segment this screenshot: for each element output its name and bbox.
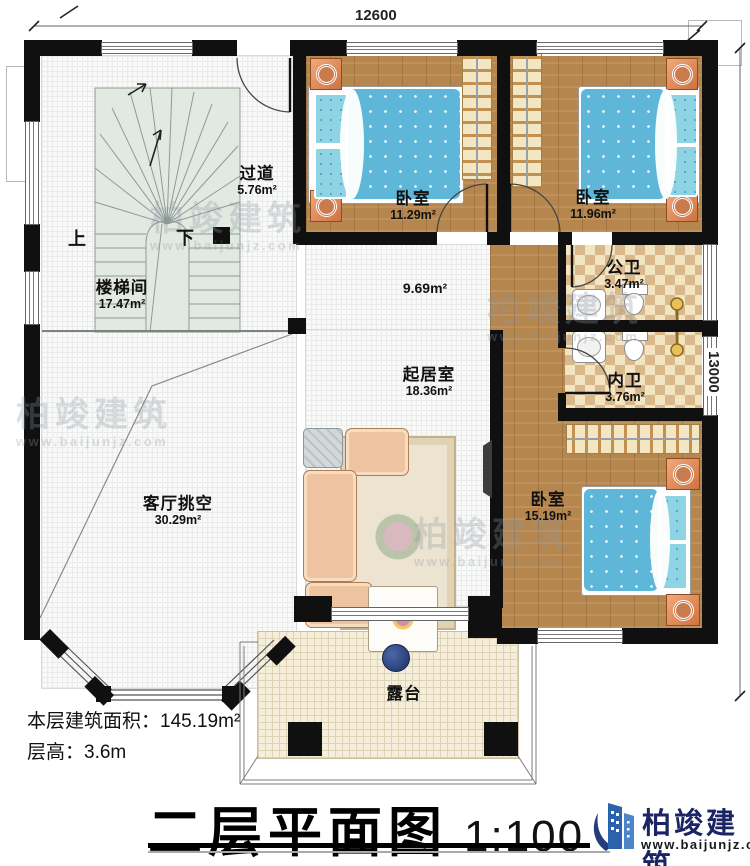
floor-height-label: 层高：	[27, 742, 84, 763]
room-label-ensuite-bath: 内卫 3.76m²	[605, 372, 645, 404]
floor-height-value: 3.6m	[84, 742, 126, 763]
wall	[293, 40, 306, 244]
window	[538, 631, 622, 642]
door-arc	[237, 58, 290, 112]
wall	[24, 324, 40, 640]
room-label-living: 起居室 18.36m²	[403, 366, 456, 398]
wall	[24, 224, 40, 272]
wall	[497, 40, 510, 232]
wall	[702, 40, 718, 245]
stair-up-label: 上	[68, 225, 86, 251]
wall	[558, 320, 705, 332]
floor-area-label: 本层建筑面积：	[27, 711, 160, 732]
window	[347, 43, 457, 53]
bay-wall-blocks	[39, 629, 295, 711]
room-label-bedroom2: 卧室 11.96m²	[570, 189, 616, 221]
floor-plan-canvas: 12600 13000 过道 5.76m² 楼梯间 17.47m² 卧室 11.…	[0, 0, 750, 866]
wall	[192, 40, 237, 56]
floor-area-note: 本层建筑面积：145.19m²	[27, 706, 240, 733]
wall	[612, 232, 718, 245]
wall	[294, 596, 332, 622]
floor-area-value: 145.19m²	[160, 711, 240, 732]
dimension-top: 12600	[352, 7, 400, 24]
window	[26, 122, 38, 224]
room-label-bedroom1: 卧室 11.29m²	[390, 190, 436, 222]
window	[26, 272, 38, 324]
terrace-column	[484, 722, 518, 756]
door-arc	[510, 184, 560, 232]
window	[704, 245, 716, 320]
room-label-void: 客厅挑空 30.29m²	[143, 495, 213, 527]
terrace-railing	[240, 642, 536, 784]
void-railing-line	[42, 330, 296, 332]
title-text: 二层平面图	[148, 803, 448, 863]
brand-logo-icon	[590, 795, 638, 853]
window	[102, 43, 192, 53]
room-label-corridor: 过道 5.76m²	[237, 165, 277, 197]
title-underline-thin	[148, 851, 610, 853]
wall	[558, 245, 566, 348]
wall	[622, 628, 718, 644]
wall	[702, 415, 718, 644]
room-label-hall-area: 9.69m²	[403, 281, 447, 297]
wall	[558, 408, 705, 421]
title-underline	[148, 843, 590, 848]
wall	[487, 232, 510, 245]
wall	[296, 232, 437, 245]
door-arc	[437, 184, 487, 232]
room-label-public-bath: 公卫 3.47m²	[604, 259, 644, 291]
stair-direction-arrows	[128, 84, 161, 166]
wall	[558, 232, 572, 245]
brand-name: 柏竣建筑	[642, 800, 750, 866]
brand-website: www.baijunjz.com	[641, 837, 750, 852]
wall	[497, 628, 538, 644]
room-label-terrace: 露台	[387, 685, 422, 703]
wall	[558, 393, 566, 409]
tv	[483, 440, 492, 498]
terrace-column	[288, 722, 322, 756]
stair-down-label: 下	[176, 224, 194, 250]
drawing-title: 二层平面图1:100	[148, 788, 584, 866]
title-scale: 1:100	[464, 812, 584, 861]
room-label-stairwell: 楼梯间 17.47m²	[96, 279, 149, 311]
door-arc	[565, 348, 610, 393]
wall	[24, 40, 40, 122]
wall-block	[288, 318, 306, 334]
room-label-bedroom3: 卧室 15.19m²	[525, 491, 572, 523]
window	[537, 43, 663, 53]
wall-block	[213, 227, 230, 244]
floor-height-note: 层高：3.6m	[27, 737, 126, 764]
void-diagonal-line	[40, 334, 292, 618]
dimension-lines	[29, 6, 745, 701]
dimension-right: 13000	[705, 348, 722, 396]
sliding-door-window	[332, 608, 468, 620]
